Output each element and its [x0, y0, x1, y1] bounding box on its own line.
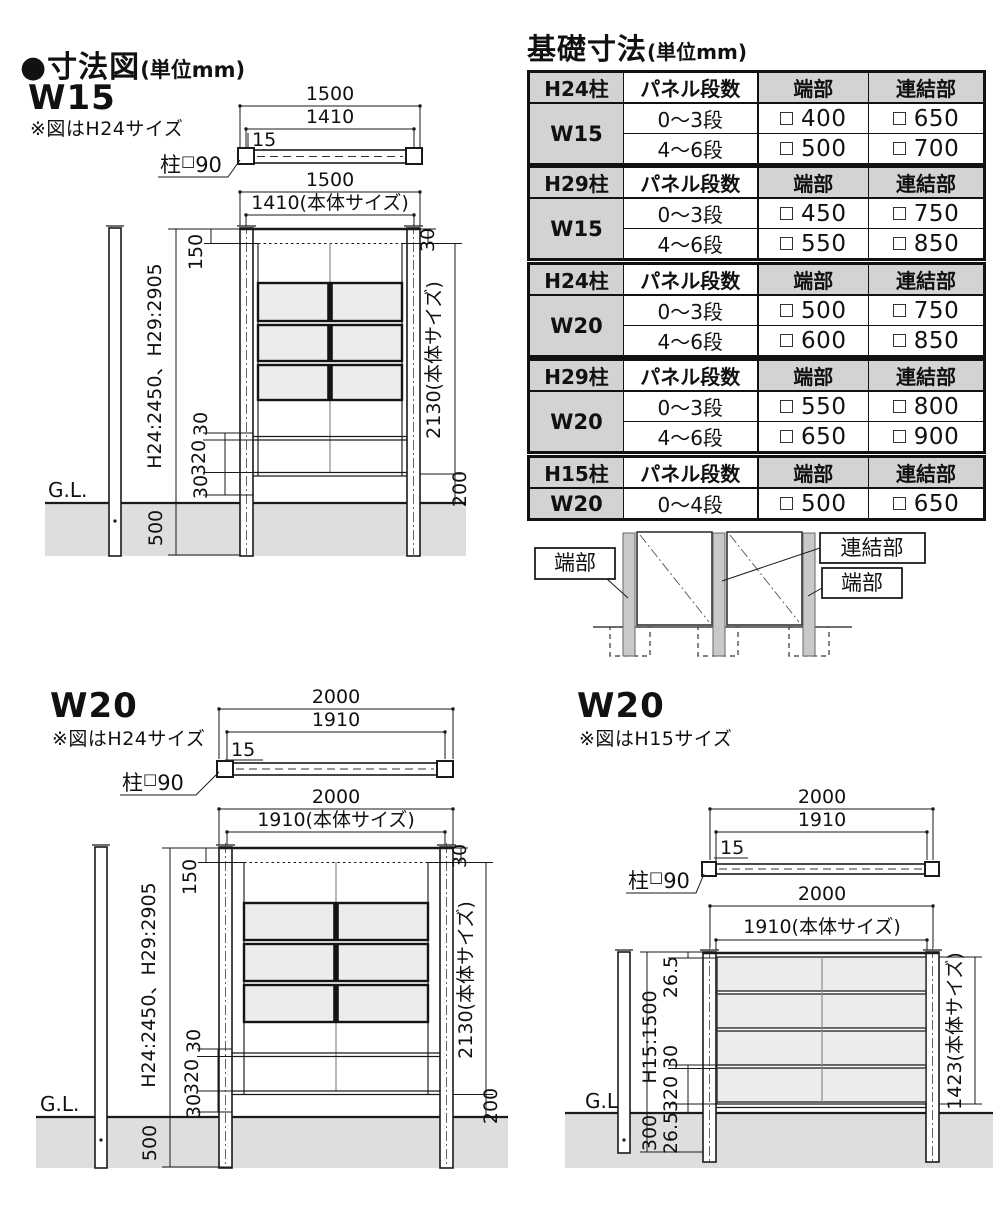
- square-symbol-icon: [780, 237, 793, 250]
- end-value: 450: [801, 201, 846, 227]
- w20-h24-front-elevation: G.L. 2000 1910(本体サイズ) 150 H24:2450、H29:2…: [36, 786, 508, 1168]
- dim-dot: [931, 807, 934, 810]
- dim-dot: [708, 904, 711, 907]
- dim-outer-width: 1500: [306, 83, 354, 105]
- dim-dot: [714, 830, 717, 833]
- w20-h15-front-elevation: G.L. 2000 1910(本体サイズ) 26.5 H15:1500 30 3…: [565, 883, 993, 1168]
- width-label-cell: W20: [529, 295, 624, 357]
- end-part-header: 端部: [758, 457, 869, 489]
- square-symbol-icon: [893, 112, 906, 125]
- dim-320: 320: [188, 440, 210, 476]
- panel-steps-header: パネル段数: [624, 360, 758, 392]
- end-part-header: 端部: [758, 72, 869, 104]
- joint-part-header: 連結部: [869, 264, 985, 296]
- w15-front-elevation: G.L. 1500 1410(本体サイズ) 150 H24:2450、H29:2…: [45, 169, 471, 556]
- dim-dot: [238, 190, 241, 193]
- joint-part-header: 連結部: [869, 457, 985, 489]
- dim-body-width: 1910(本体サイズ): [743, 916, 901, 938]
- steps-cell: 4〜6段: [624, 422, 758, 453]
- joint-value-cell: 850: [869, 229, 985, 260]
- square-symbol-icon: [780, 112, 793, 125]
- w20-h15-note: ※図はH15サイズ: [579, 724, 732, 751]
- width-label-cell: W20: [529, 391, 624, 453]
- square-symbol-icon: [780, 207, 793, 220]
- dim-line: [716, 940, 927, 950]
- dim-top-gap: 30: [449, 844, 471, 868]
- end-value-cell: 550: [758, 391, 869, 422]
- post-left: [217, 761, 233, 777]
- square-symbol-icon: [893, 430, 906, 443]
- panel-steps-header: パネル段数: [624, 264, 758, 296]
- dim-line: [227, 832, 445, 845]
- band-divider: [333, 944, 339, 981]
- dim-dot: [708, 807, 711, 810]
- joint-label: 連結部: [841, 536, 904, 560]
- dim-dot: [451, 807, 454, 810]
- dim-outer-width: 2000: [312, 786, 360, 808]
- dim-height: H24:2450、H29:2905: [138, 882, 160, 1087]
- square-symbol-icon: [893, 334, 906, 347]
- joint-value-cell: 850: [869, 326, 985, 357]
- steps-cell: 0〜3段: [624, 198, 758, 229]
- joint-value: 850: [914, 328, 959, 354]
- joint-value: 750: [914, 201, 959, 227]
- joint-value: 650: [914, 106, 959, 132]
- joint-value-cell: 650: [869, 488, 985, 520]
- joint-value-cell: 800: [869, 391, 985, 422]
- post-type-header: H15柱: [529, 457, 624, 489]
- square-symbol-icon: [893, 497, 906, 510]
- end-value-cell: 550: [758, 229, 869, 260]
- table-row: W15 0〜3段 400 650: [529, 103, 985, 134]
- dim-body-height: 1423(本体サイズ): [944, 952, 966, 1110]
- dim-body-width: 1410(本体サイズ): [251, 192, 409, 214]
- post-type-header: H24柱: [529, 264, 624, 296]
- dim-dot: [443, 830, 446, 833]
- end-value-cell: 500: [758, 488, 869, 520]
- square-symbol-icon: [893, 400, 906, 413]
- ground: [45, 504, 466, 556]
- post-size-label: 柱□90: [122, 770, 184, 795]
- dim-dot: [418, 190, 421, 193]
- dim-inset: 15: [231, 739, 255, 761]
- side-view-post: [618, 952, 630, 1153]
- panel-steps-header: パネル段数: [624, 167, 758, 199]
- end-value: 500: [801, 298, 846, 324]
- joint-value-cell: 900: [869, 422, 985, 453]
- end-value: 550: [801, 394, 846, 420]
- dim-320: 320: [181, 1059, 203, 1095]
- steps-cell: 0〜3段: [624, 295, 758, 326]
- panel-steps-header: パネル段数: [624, 457, 758, 489]
- dim-height: H15:1500: [639, 990, 661, 1083]
- w20-h15-plan-view: 2000 1910 15 柱□90: [626, 786, 939, 893]
- square-symbol-icon: [780, 400, 793, 413]
- square-symbol-icon: [893, 142, 906, 155]
- dim-height: H24:2450、H29:2905: [144, 263, 166, 468]
- post-right: [406, 148, 422, 164]
- dim-line: [716, 832, 927, 860]
- post-dot: [622, 1138, 625, 1141]
- dim-bottom-gap: 200: [449, 471, 471, 507]
- dim-dot: [225, 730, 228, 733]
- dim-line: [227, 732, 445, 759]
- post-type-header: H24柱: [529, 72, 624, 104]
- dim-30b: 30: [190, 475, 212, 499]
- ground-level-label: G.L.: [48, 478, 87, 502]
- square-symbol-icon: [893, 207, 906, 220]
- joint-value: 650: [914, 491, 959, 517]
- post-dot: [113, 519, 116, 522]
- dim-30a: 30: [190, 412, 212, 436]
- end-value: 400: [801, 106, 846, 132]
- joint-value: 750: [914, 298, 959, 324]
- dim-bottom-gap: 200: [480, 1088, 502, 1124]
- w20-h24-heading: W20: [50, 686, 138, 726]
- dim-body-height: 2130(本体サイズ): [423, 281, 445, 439]
- end-part-header: 端部: [758, 264, 869, 296]
- dim-dot: [217, 707, 220, 710]
- joint-value-cell: 650: [869, 103, 985, 134]
- end-part-header: 端部: [758, 167, 869, 199]
- dim-320: 320: [660, 1076, 682, 1112]
- dim-top-rail: 150: [179, 859, 201, 895]
- post-size-label: 柱□90: [628, 868, 690, 893]
- dim-26-5: 26.5: [660, 1112, 682, 1154]
- dim-embed: 500: [145, 510, 167, 546]
- square-symbol-icon: [780, 142, 793, 155]
- joint-value: 700: [914, 136, 959, 162]
- dim-dot: [443, 730, 446, 733]
- post-left: [702, 862, 716, 876]
- joint-value: 900: [914, 424, 959, 450]
- dim-30: 30: [660, 1045, 682, 1069]
- dim-embed: 300: [639, 1115, 661, 1151]
- post-right: [925, 862, 939, 876]
- joint-diagram: 端部 連結部 端部: [535, 532, 925, 656]
- post-right: [437, 761, 453, 777]
- joint-value-cell: 750: [869, 198, 985, 229]
- square-symbol-icon: [780, 430, 793, 443]
- square-symbol-icon: [780, 334, 793, 347]
- dim-inner-width: 1910: [798, 809, 846, 831]
- end-label: 端部: [841, 571, 883, 595]
- w15-heading: W15: [28, 78, 116, 118]
- dim-dot: [412, 127, 415, 130]
- catalog-page: 1500 1410 15 柱□90 G.L. 1500 1410(本体サイズ): [0, 0, 1000, 1209]
- dim-embed: 500: [139, 1125, 161, 1161]
- dim-body-width: 1910(本体サイズ): [257, 809, 415, 831]
- end-value: 550: [801, 231, 846, 257]
- w20-h24-note: ※図はH24サイズ: [52, 724, 205, 751]
- steps-cell: 0〜3段: [624, 103, 758, 134]
- post-type-header: H29柱: [529, 360, 624, 392]
- w15-plan-view: 1500 1410 15 柱□90: [158, 83, 422, 177]
- ground-level-label: G.L.: [40, 1092, 79, 1116]
- table-row: W20 0〜4段 500 650: [529, 488, 985, 520]
- joint-value: 800: [914, 394, 959, 420]
- steps-cell: 4〜6段: [624, 326, 758, 357]
- joint-post: [713, 533, 725, 656]
- dim-outer-width: 2000: [798, 883, 846, 905]
- dim-inner-width: 1910: [312, 709, 360, 731]
- w20-h15-heading: W20: [577, 686, 665, 726]
- dim-line: [246, 215, 414, 226]
- dim-dot: [925, 830, 928, 833]
- w15-note: ※図はH24サイズ: [30, 114, 183, 141]
- foundation-table-h15-w20: H15柱 パネル段数 端部 連結部 W20 0〜4段 500 650: [527, 455, 986, 521]
- dim-dot: [931, 904, 934, 907]
- dimension-title-unit: (単位mm): [140, 58, 245, 82]
- dim-30a: 30: [183, 1029, 205, 1053]
- joint-value-cell: 750: [869, 295, 985, 326]
- band-divider: [327, 283, 333, 321]
- foundation-title-unit: (単位mm): [647, 40, 747, 64]
- post-dot: [99, 1138, 102, 1141]
- steps-cell: 4〜6段: [624, 229, 758, 260]
- square-symbol-icon: [780, 304, 793, 317]
- dim-inset: 15: [252, 129, 276, 151]
- width-label-cell: W15: [529, 103, 624, 165]
- foundation-table-h24-w20: H24柱 パネル段数 端部 連結部 W20 0〜3段 500 750 4〜6段 …: [527, 262, 986, 358]
- dim-30b: 30: [183, 1094, 205, 1118]
- dim-outer-width: 2000: [798, 786, 846, 808]
- dim-dot: [714, 938, 717, 941]
- end-value-cell: 600: [758, 326, 869, 357]
- dim-dot: [418, 104, 421, 107]
- table-row: W15 0〜3段 450 750: [529, 198, 985, 229]
- dim-outer-width: 2000: [312, 686, 360, 708]
- dim-dot: [244, 213, 247, 216]
- end-label: 端部: [554, 551, 596, 575]
- end-value: 650: [801, 424, 846, 450]
- end-value-cell: 500: [758, 295, 869, 326]
- dim-dot: [225, 830, 228, 833]
- dim-dot: [244, 127, 247, 130]
- width-label-cell: W20: [529, 488, 624, 520]
- end-value: 500: [801, 491, 846, 517]
- steps-cell: 4〜6段: [624, 134, 758, 165]
- end-value: 600: [801, 328, 846, 354]
- end-part-header: 端部: [758, 360, 869, 392]
- joint-part-header: 連結部: [869, 360, 985, 392]
- foundation-table-h29-w15: H29柱 パネル段数 端部 連結部 W15 0〜3段 450 750 4〜6段 …: [527, 165, 986, 261]
- dim-dot: [217, 807, 220, 810]
- end-value-cell: 400: [758, 103, 869, 134]
- square-symbol-icon: [893, 237, 906, 250]
- square-symbol-icon: [893, 304, 906, 317]
- joint-part-header: 連結部: [869, 167, 985, 199]
- dim-dot: [925, 938, 928, 941]
- end-value-cell: 650: [758, 422, 869, 453]
- joint-part-header: 連結部: [869, 72, 985, 104]
- panel-steps-header: パネル段数: [624, 72, 758, 104]
- end-value: 500: [801, 136, 846, 162]
- dim-outer-width: 1500: [306, 169, 354, 191]
- band-divider: [327, 365, 333, 400]
- end-value-cell: 500: [758, 134, 869, 165]
- post-size-label: 柱□90: [160, 152, 222, 177]
- dim-inset: 15: [720, 837, 744, 859]
- band-divider: [327, 325, 333, 361]
- steps-cell: 0〜3段: [624, 391, 758, 422]
- side-view-post: [109, 228, 121, 556]
- bottom-rails: [716, 1104, 927, 1108]
- post-type-header: H29柱: [529, 167, 624, 199]
- band-divider: [333, 903, 339, 940]
- dim-body-height: 2130(本体サイズ): [455, 901, 477, 1059]
- steps-cell: 0〜4段: [624, 488, 758, 520]
- foundation-title-text: 基礎寸法: [527, 32, 647, 66]
- dim-top-rail: 150: [185, 234, 207, 270]
- width-label-cell: W15: [529, 198, 624, 260]
- dim-dot: [412, 213, 415, 216]
- post-left: [238, 148, 254, 164]
- joint-value: 850: [914, 231, 959, 257]
- dim-inner-width: 1410: [306, 106, 354, 128]
- foundation-table-h24-w15: H24柱 パネル段数 端部 連結部 W15 0〜3段 400 650 4〜6段 …: [527, 70, 986, 166]
- joint-value-cell: 700: [869, 134, 985, 165]
- dim-top-gap: 30: [417, 228, 439, 252]
- table-row: W20 0〜3段 500 750: [529, 295, 985, 326]
- foundation-table-h29-w20: H29柱 パネル段数 端部 連結部 W20 0〜3段 550 800 4〜6段 …: [527, 358, 986, 454]
- dim-dot: [238, 104, 241, 107]
- side-view-post: [95, 847, 107, 1168]
- dim-top-gap: 26.5: [660, 956, 682, 998]
- band-divider: [333, 985, 339, 1022]
- end-value-cell: 450: [758, 198, 869, 229]
- table-row: W20 0〜3段 550 800: [529, 391, 985, 422]
- dim-dot: [451, 707, 454, 710]
- foundation-section-title: 基礎寸法(単位mm): [527, 26, 747, 68]
- square-symbol-icon: [780, 497, 793, 510]
